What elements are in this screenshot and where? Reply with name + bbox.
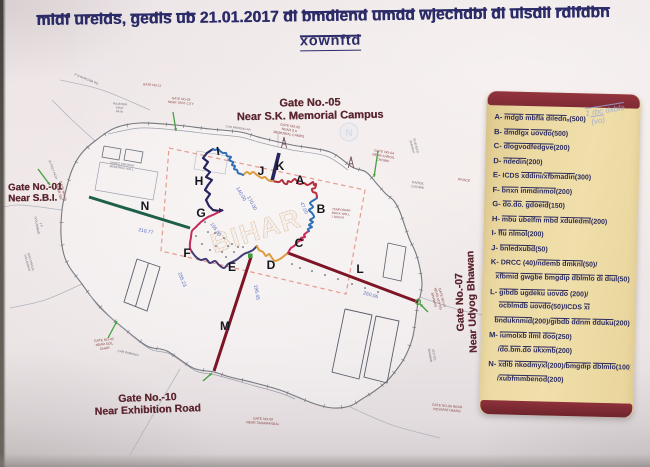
svg-text:KIVACE: KIVACE <box>458 177 471 183</box>
svg-text:B: B <box>317 202 326 216</box>
svg-text:H: H <box>195 174 204 188</box>
svg-text:NEAR TENT CITY: NEAR TENT CITY <box>168 100 195 106</box>
svg-text:GHAR: GHAR <box>100 346 111 351</box>
svg-text:CAR PARKING: CAR PARKING <box>117 349 140 358</box>
svg-text:A: A <box>296 173 305 187</box>
svg-text:F: F <box>183 246 190 260</box>
svg-text:GATE NO-11: GATE NO-11 <box>143 82 162 88</box>
svg-text:E: E <box>228 260 236 274</box>
svg-text:G: G <box>196 206 205 220</box>
svg-text:30 FEET PATH: 30 FEET PATH <box>48 159 59 179</box>
svg-text:J: J <box>258 164 265 178</box>
svg-text:N: N <box>141 199 150 213</box>
svg-text:D: D <box>267 258 276 272</box>
svg-text:PATH: PATH <box>115 109 123 114</box>
svg-text:M: M <box>220 319 230 333</box>
svg-text:L: L <box>356 262 363 276</box>
svg-text:K: K <box>276 159 285 173</box>
svg-text:C: C <box>295 236 304 250</box>
svg-text:CHOWK: CHOWK <box>376 157 390 163</box>
svg-text:GOLAMBAR: GOLAMBAR <box>34 216 41 235</box>
svg-text:CHOWK: CHOWK <box>411 184 425 190</box>
svg-text:NEAR TARAMANDAL: NEAR TARAMANDAL <box>246 420 279 426</box>
svg-text:N: N <box>345 128 352 139</box>
